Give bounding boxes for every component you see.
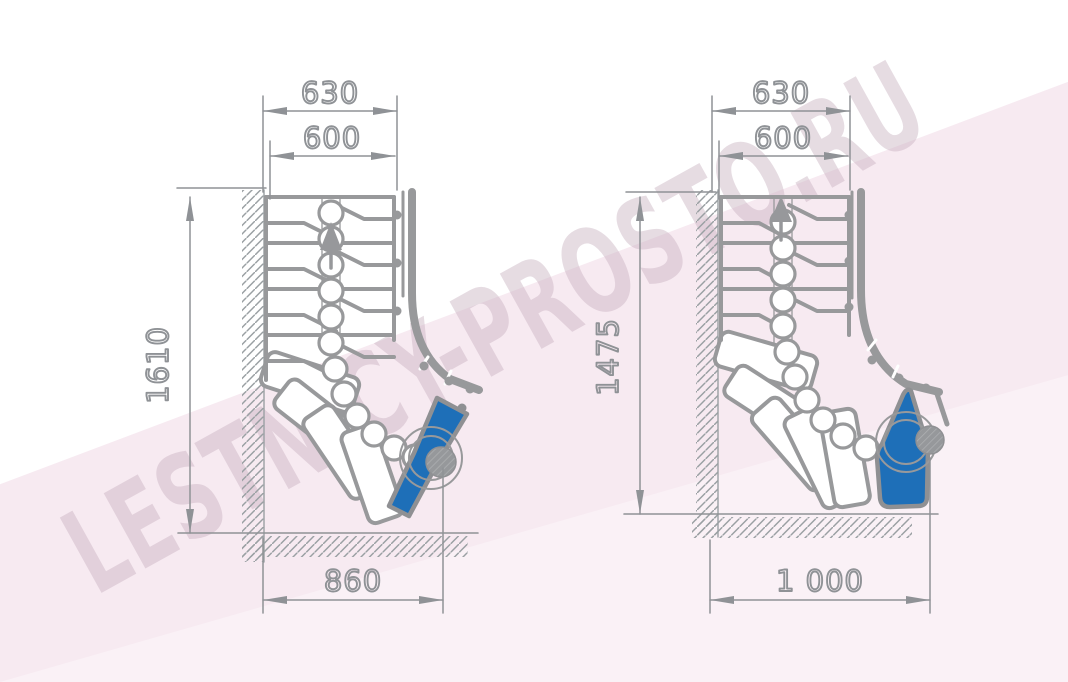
- dim-label-clear-width-left: 600: [303, 121, 361, 155]
- outer-stringer: [393, 192, 480, 394]
- dim-label-overall-width-left: 630: [301, 76, 359, 110]
- dim-label-turn-width-left: 860: [324, 564, 382, 598]
- dim-label-height-left: 1610: [141, 326, 175, 404]
- support-post: [426, 447, 456, 477]
- staircase-drawings: 630 600 1610 860: [0, 0, 1068, 682]
- support-post: [916, 426, 944, 454]
- outer-stringer: [845, 192, 948, 424]
- dim-label-turn-width-right: 1 000: [776, 564, 864, 598]
- dim-label-clear-width-right: 600: [754, 121, 812, 155]
- dim-label-height-right: 1475: [591, 318, 625, 396]
- diagram-right: 630 600 1475 1 000: [591, 76, 947, 613]
- highlighted-tread: [389, 398, 467, 516]
- highlighted-tread: [876, 390, 944, 507]
- drawing-canvas: LESTNICY-PROSTO.RU: [0, 0, 1068, 682]
- diagram-left: 630 600 1610 860: [141, 76, 479, 613]
- dim-label-overall-width-right: 630: [752, 76, 810, 110]
- dimensions-left: [177, 96, 443, 613]
